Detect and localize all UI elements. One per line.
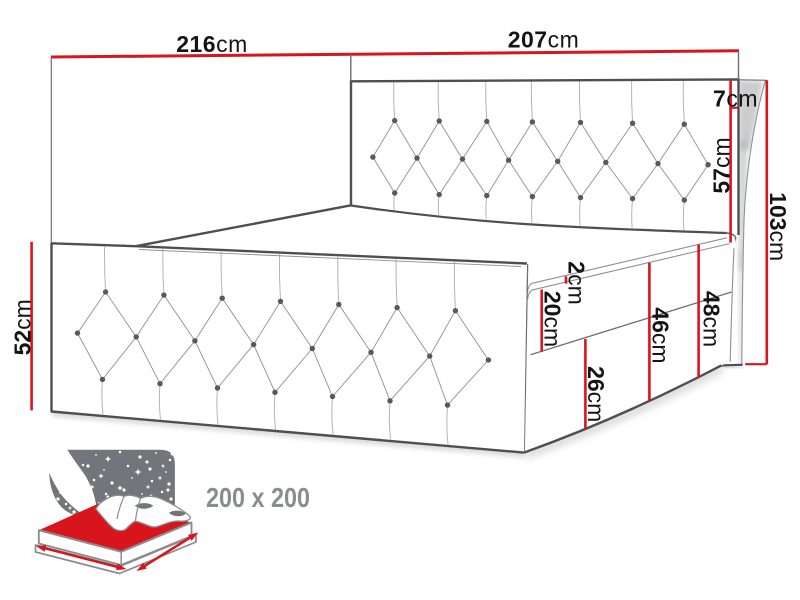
svg-text:26cm: 26cm — [583, 366, 609, 422]
svg-text:103cm: 103cm — [765, 192, 791, 261]
svg-text:20cm: 20cm — [540, 291, 566, 347]
svg-text:207cm: 207cm — [508, 27, 580, 53]
svg-text:57cm: 57cm — [708, 137, 734, 193]
svg-text:200 x 200: 200 x 200 — [206, 482, 310, 513]
svg-text:216cm: 216cm — [176, 31, 248, 57]
svg-text:7cm: 7cm — [713, 86, 758, 112]
svg-text:46cm: 46cm — [648, 307, 674, 363]
svg-text:2cm: 2cm — [564, 261, 590, 304]
svg-text:52cm: 52cm — [10, 299, 36, 355]
svg-text:48cm: 48cm — [699, 291, 725, 347]
